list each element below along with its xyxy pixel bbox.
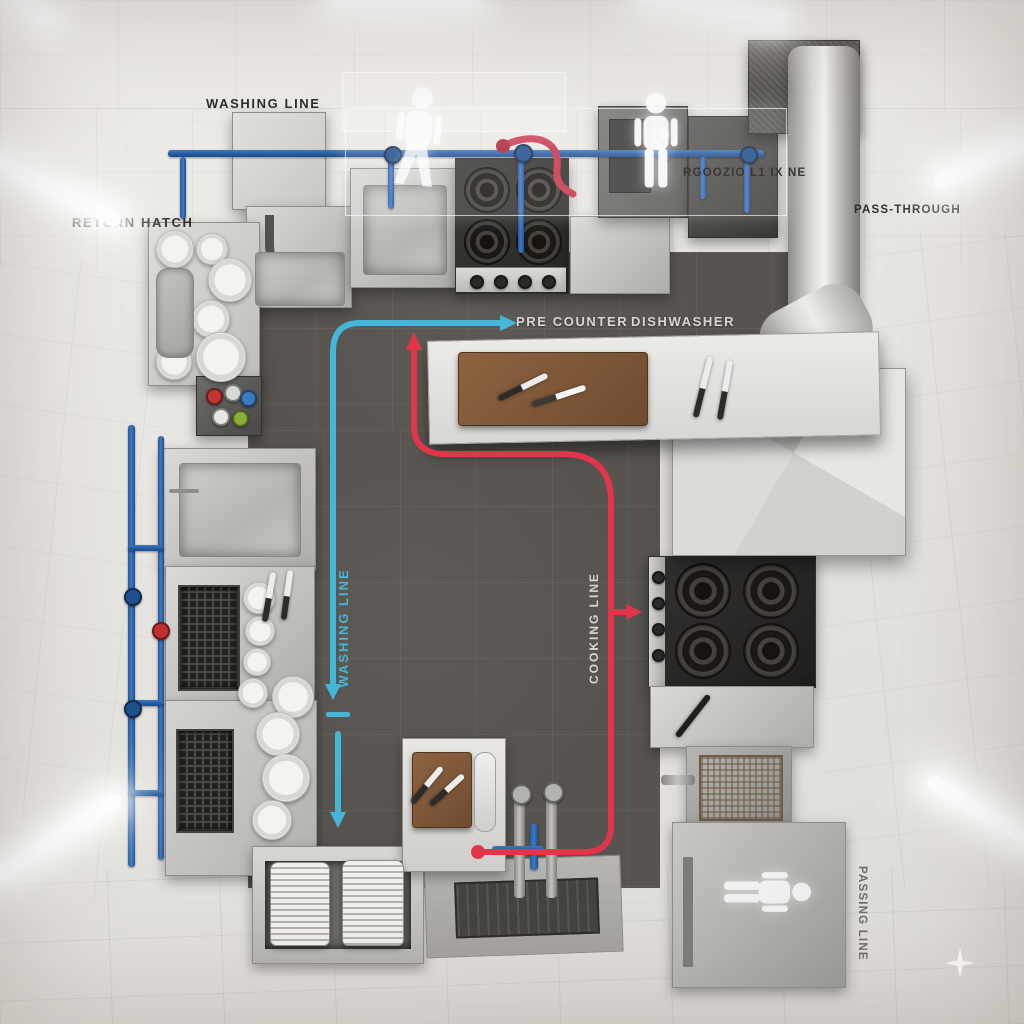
pipe-valve-icon — [152, 622, 170, 640]
water-pipe — [158, 436, 164, 860]
pass-through-label: PASS-THROUGH — [854, 204, 961, 216]
burner-icon — [743, 563, 799, 619]
water-pipe — [128, 790, 164, 796]
person-silhouette-icon — [630, 92, 682, 197]
range-right-wall — [648, 556, 816, 688]
gray-valve-icon — [212, 408, 230, 426]
plate — [245, 616, 275, 646]
person-silhouette-icon — [392, 86, 444, 195]
plate-stack — [270, 862, 330, 946]
red-valve-icon — [206, 388, 223, 405]
cabinet-handle — [683, 857, 693, 967]
pipe-valve-icon — [124, 700, 142, 718]
wash-sink-unit — [162, 448, 316, 570]
water-pipe — [128, 425, 135, 867]
left-wall-tiles — [0, 260, 160, 900]
water-pipe — [128, 545, 164, 551]
plate — [156, 230, 194, 268]
plate — [252, 800, 292, 840]
drain-pipe — [514, 790, 525, 898]
bus-tray — [156, 268, 194, 358]
plate — [196, 332, 246, 382]
plate — [262, 754, 310, 802]
burner-icon — [675, 563, 731, 619]
blue-valve-icon — [240, 390, 257, 407]
range-control-panel — [456, 267, 566, 292]
faucet — [169, 489, 199, 493]
dishwasher-label: DISHWASHER — [631, 314, 735, 329]
return-hatch-label: RETURN HATCH — [72, 215, 194, 230]
floor-drain — [454, 878, 600, 939]
utensil-holder — [474, 752, 496, 832]
washing-line-label: WASHING LINE — [206, 96, 321, 111]
fryer-basket — [699, 755, 783, 821]
plate — [208, 258, 252, 302]
plate — [243, 648, 271, 676]
plate-stack — [342, 860, 404, 946]
cutting-board — [458, 352, 648, 426]
green-valve-icon — [232, 410, 249, 427]
pipe-valve-icon — [124, 588, 142, 606]
goods-line-label: RGOOZIO L1 IX NE — [683, 167, 806, 179]
drain-pipe — [546, 788, 557, 898]
plate — [256, 712, 300, 756]
pipe-drop — [180, 157, 186, 219]
sink-basin — [179, 463, 301, 557]
pass-through-hood — [232, 112, 326, 210]
burner-icon — [464, 219, 510, 265]
dish-rack — [178, 585, 240, 691]
plate — [238, 678, 268, 708]
burner-icon — [743, 623, 799, 679]
water-pipe — [492, 846, 544, 853]
pre-counter-label: PRE COUNTER — [516, 314, 628, 329]
ceiling-light — [330, 0, 480, 7]
passing-line-label: PASSING LINE — [856, 866, 868, 961]
vent-grille — [176, 729, 234, 833]
range-knob-strip — [649, 557, 665, 687]
burner-icon — [675, 623, 731, 679]
fryer — [686, 746, 792, 828]
conveyor-basin — [255, 252, 345, 306]
fryer-handle — [661, 775, 695, 785]
person-silhouette-icon — [732, 870, 812, 970]
counter-top-wall — [570, 216, 670, 294]
counter-right — [650, 686, 814, 748]
